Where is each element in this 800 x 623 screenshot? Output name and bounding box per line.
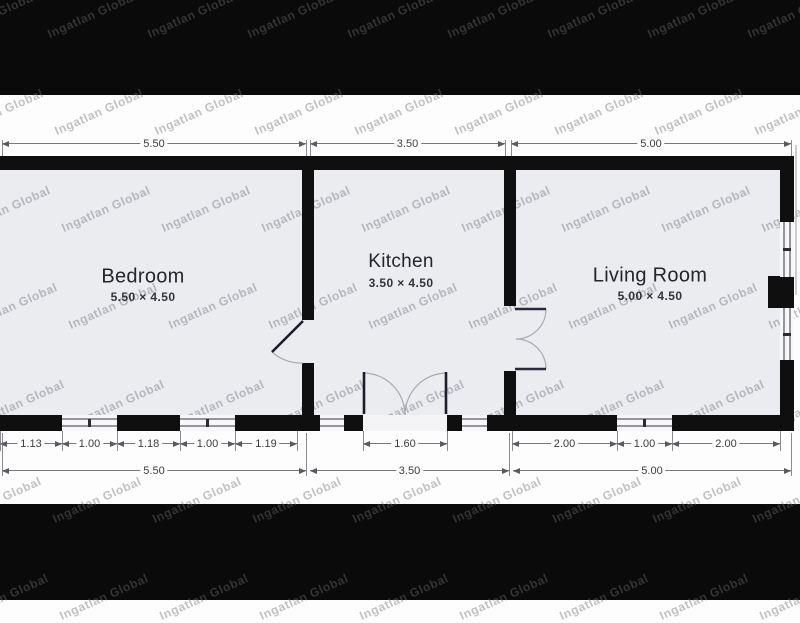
dimension-label: 5.50: [140, 464, 167, 476]
room-size-kitchen: 3.50 × 4.50: [369, 276, 434, 290]
dimension-mark: [672, 441, 679, 447]
dimension-mark: [498, 141, 505, 147]
living-door-arc-top: [516, 309, 546, 339]
dimension-mark: [447, 431, 448, 451]
dimension-mark: [502, 468, 509, 474]
dimension-mark: [791, 433, 792, 476]
dimension-label: 2.00: [712, 437, 739, 449]
dimension-mark: [773, 441, 780, 447]
dimension-label: 5.00: [637, 137, 664, 149]
dimension-label: 1.13: [17, 437, 44, 449]
dimension-mark: [2, 141, 9, 147]
dimension-mark: [784, 141, 791, 147]
dimension-mark: [363, 441, 370, 447]
dimension-mark: [290, 441, 297, 447]
dimension-mark: [780, 431, 781, 451]
dimension-mark: [55, 441, 62, 447]
dimension-mark: [617, 441, 624, 447]
dimension-mark: [235, 441, 242, 447]
room-label-bedroom: Bedroom: [101, 266, 184, 289]
dimension-label: 1.19: [252, 437, 279, 449]
dimension-mark: [610, 441, 617, 447]
dimension-mark: [440, 441, 447, 447]
dimension-mark: [310, 141, 317, 147]
dimension-mark: [299, 141, 306, 147]
living-door-arc-bottom: [516, 339, 546, 369]
dimension-mark: [791, 140, 792, 156]
dimension-label: 3.50: [396, 464, 423, 476]
room-label-kitchen: Kitchen: [368, 251, 433, 273]
dimension-label: 1.00: [76, 437, 103, 449]
dimension-mark: [306, 140, 307, 156]
dimension-mark: [299, 468, 306, 474]
dimension-label: 1.00: [194, 437, 221, 449]
dimension-mark: [784, 468, 791, 474]
bedroom-door-leaf: [272, 321, 303, 352]
dimension-label: 1.60: [391, 437, 418, 449]
dimension-mark: [173, 441, 180, 447]
dimension-mark: [509, 433, 510, 476]
dimension-mark: [180, 441, 187, 447]
kitchen-door-arc-left: [363, 373, 405, 415]
dimension-mark: [665, 441, 672, 447]
dimension-mark: [2, 468, 9, 474]
room-label-living-room: Living Room: [593, 265, 707, 288]
dimension-mark: [511, 141, 518, 147]
dimension-label: 1.00: [631, 437, 658, 449]
dimension-mark: [512, 441, 519, 447]
dimension-label: 3.50: [394, 137, 421, 149]
dimension-mark: [310, 468, 317, 474]
bedroom-door-arc: [272, 352, 303, 363]
dimension-label: 5.00: [638, 464, 665, 476]
dimension-mark: [62, 441, 69, 447]
dimension-mark: [0, 441, 7, 447]
dimension-mark: [306, 433, 307, 476]
dimension-label: 5.50: [140, 137, 167, 149]
dimension-mark: [228, 441, 235, 447]
kitchen-door-arc-right: [405, 373, 447, 415]
dimension-mark: [297, 431, 298, 451]
dimension-mark: [505, 140, 506, 156]
dimension-label: 2.00: [551, 437, 578, 449]
dimension-label: 1.18: [135, 437, 162, 449]
dimension-mark: [117, 441, 124, 447]
room-size-bedroom: 5.50 × 4.50: [111, 290, 176, 304]
dimension-mark: [110, 441, 117, 447]
dimension-mark: [513, 468, 520, 474]
room-size-living-room: 5.00 × 4.50: [618, 289, 683, 303]
